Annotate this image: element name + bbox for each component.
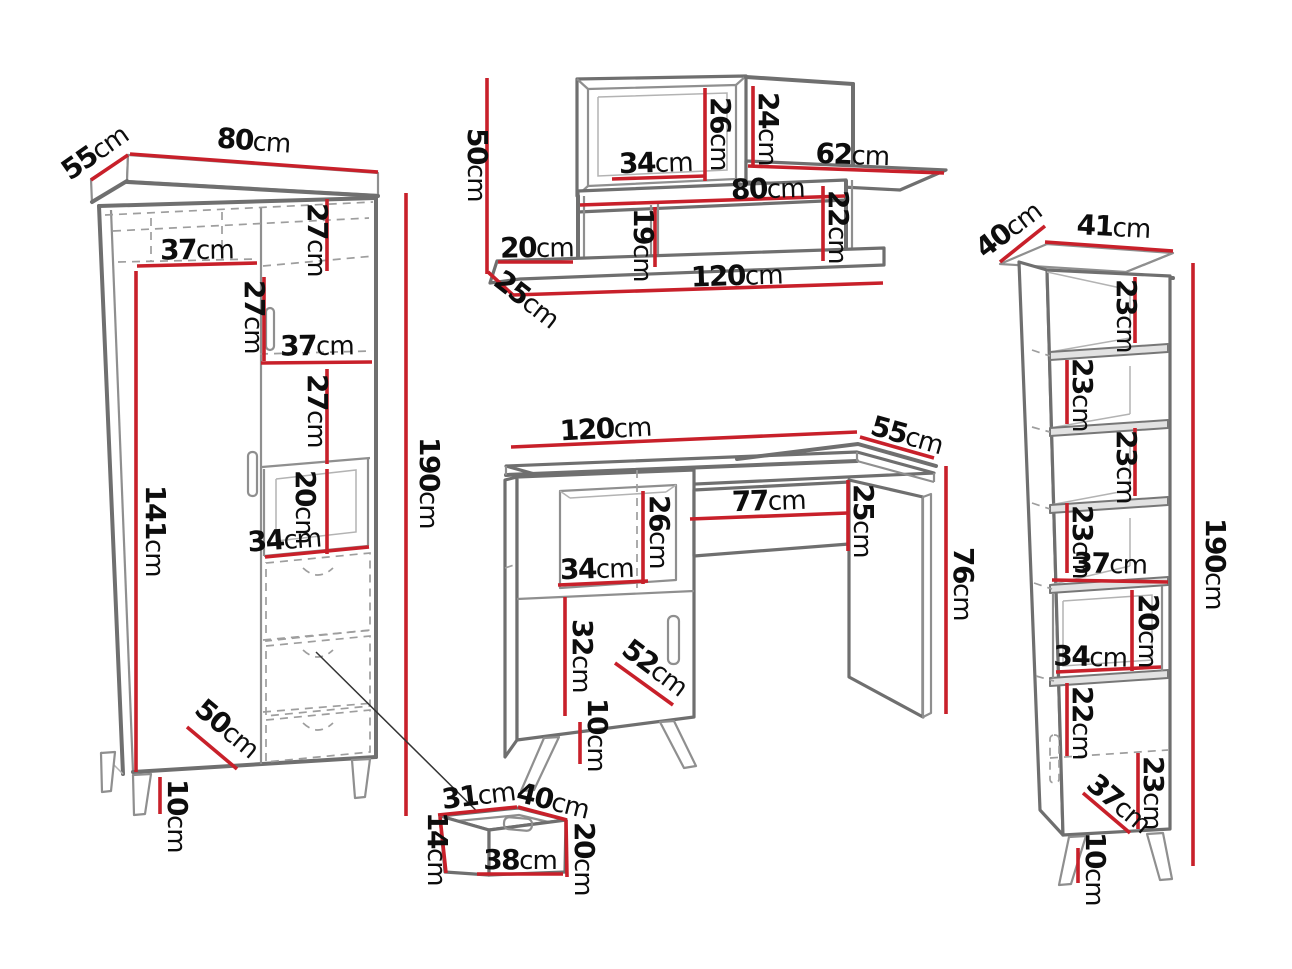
wardrobe-shelf-top-label: 37cm (160, 232, 234, 266)
bookcase-width-label: 41cm (1076, 208, 1151, 245)
dim-value: 26 (704, 97, 737, 133)
dim-unit: cm (566, 655, 596, 693)
dim-value: 80 (730, 172, 768, 206)
wardrobe-width-label: 80cm (216, 121, 292, 159)
desk-compartment-width-label: 34cm (559, 551, 634, 587)
wardrobe-section-c-label: 27cm (301, 374, 334, 448)
drawer-box-side-height-label: 14cm (421, 812, 454, 886)
dim-value: 77 (731, 484, 768, 518)
dim-value: 41 (1076, 208, 1114, 243)
dim-value: 27 (301, 203, 334, 239)
drawer-box-total-height-line (566, 820, 567, 877)
dim-unit: cm (744, 260, 783, 291)
dim-value: 23 (1137, 756, 1170, 792)
bookcase-cubby-width-label: 34cm (1053, 639, 1127, 673)
shelf-height-label: 50cm (461, 128, 494, 202)
dim-unit: cm (519, 846, 557, 876)
shelf-divider-label: 19cm (627, 208, 660, 282)
bookcase-shelf-width-line (1052, 580, 1168, 582)
dim-unit: cm (568, 858, 598, 896)
bookcase-gap2-label: 23cm (1066, 358, 1099, 432)
dim-unit: cm (196, 235, 234, 266)
dim-value: 25 (847, 484, 880, 520)
wardrobe-door-handle (248, 452, 257, 496)
dim-value: 37 (160, 233, 197, 267)
dim-unit: cm (643, 531, 673, 569)
wardrobe-leg-label: 10cm (161, 779, 194, 853)
dim-value: 37 (280, 329, 317, 363)
dim-value: 76 (947, 547, 980, 583)
dim-unit: cm (1132, 630, 1162, 668)
dim-value: 120 (559, 412, 616, 448)
shelf-cabinet-width-label: 34cm (618, 145, 693, 181)
dim-unit: cm (1199, 572, 1229, 610)
dim-value: 62 (815, 137, 852, 171)
dim-value: 22 (822, 190, 855, 226)
wardrobe-drawing: 55cm 80cm 190cm 37cm 27cm 27cm 37cm 27cm… (55, 118, 446, 853)
wardrobe-base-depth-label: 50cm (189, 692, 267, 765)
dim-value: 10 (581, 698, 614, 735)
desk-door-height-label: 32cm (566, 619, 599, 693)
dim-value: 34 (618, 146, 656, 180)
dim-unit: cm (822, 226, 852, 264)
dim-value: 23 (1066, 358, 1099, 394)
dim-value: 27 (238, 280, 271, 316)
drawer-box-total-height-label: 20cm (568, 822, 601, 896)
dim-value: 26 (643, 495, 676, 531)
dim-value: 34 (559, 552, 597, 586)
wardrobe-labels: 55cm 80cm 190cm 37cm 27cm 27cm 37cm 27cm… (55, 118, 446, 853)
dim-unit: cm (613, 413, 652, 445)
bookcase-gap-below-cubby-label: 22cm (1066, 686, 1099, 760)
bookcase-gap3-label: 23cm (1110, 430, 1143, 504)
wardrobe-leg (101, 752, 115, 792)
dim-value: 10 (1079, 832, 1112, 869)
dim-value: 19 (627, 208, 660, 244)
dim-unit: cm (1066, 394, 1096, 432)
dim-unit: cm (413, 491, 443, 529)
desk-leg (660, 721, 696, 768)
dim-unit: cm (627, 244, 657, 282)
dim-unit: cm (238, 316, 268, 354)
shelf-right-opening-label: 24cm (752, 92, 785, 166)
dim-value: 32 (566, 619, 599, 655)
dim-unit: cm (1110, 466, 1140, 504)
bookcase-gap1-label: 23cm (1110, 279, 1143, 353)
dim-unit: cm (752, 128, 782, 166)
wall-shelf-drawing: 50cm 26cm 34cm 24cm 62cm 80cm 22cm 19cm … (461, 76, 946, 335)
dim-unit: cm (316, 331, 354, 362)
dim-value: 120 (690, 259, 746, 294)
dim-value: 27 (301, 374, 334, 410)
dim-unit: cm (1089, 643, 1127, 674)
shelf-width-label: 120cm (690, 257, 783, 293)
drawer-box-front-width-label: 38cm (483, 843, 557, 876)
shelf-top-shelf-label: 62cm (815, 137, 890, 173)
desk-drawing: 120cm 55cm 76cm 77cm 25cm 26cm 34cm 32cm… (505, 409, 980, 791)
wardrobe-shelf-mid-label: 37cm (280, 328, 354, 362)
dim-value: 190 (1199, 518, 1232, 573)
dim-unit: cm (461, 164, 491, 202)
dim-value: 23 (1110, 279, 1143, 315)
wardrobe-leg (352, 759, 370, 798)
dim-value: 80 (216, 121, 255, 156)
dim-value: 38 (483, 843, 519, 876)
dim-unit: cm (767, 486, 806, 517)
dim-unit: cm (139, 539, 169, 577)
bookcase-leg-label: 10cm (1079, 832, 1112, 906)
dim-value: 23 (1066, 505, 1099, 541)
dim-value: 24 (752, 92, 785, 129)
dim-value: 31 (440, 779, 480, 816)
dim-value: 20 (568, 822, 601, 859)
dim-value: 20 (1132, 594, 1165, 631)
dim-unit: cm (476, 777, 517, 811)
shelf-left-shelf-label: 20cm (500, 230, 574, 264)
dim-unit: cm (1109, 550, 1147, 581)
desk-depth-label: 55cm (867, 409, 947, 461)
bookcase-leg (1147, 833, 1172, 880)
dim-unit: cm (654, 148, 693, 179)
shelf-right-gap-label: 22cm (822, 190, 855, 264)
dim-unit: cm (847, 520, 877, 558)
dim-unit: cm (301, 410, 331, 448)
dim-unit: cm (1112, 213, 1151, 245)
dim-unit: cm (581, 734, 611, 772)
shelf-middle-shelf-label: 80cm (730, 171, 805, 207)
dim-value: 20 (289, 470, 322, 507)
dim-value: 141 (139, 485, 172, 539)
dim-unit: cm (161, 815, 191, 853)
bookcase-cubby-height-label: 20cm (1132, 594, 1165, 668)
dim-value: 37 (1073, 546, 1110, 580)
shelf-cabinet-height-label: 26cm (704, 97, 737, 171)
dim-value: 23 (1110, 430, 1143, 466)
wardrobe-height-label: 190cm (413, 437, 446, 529)
dim-value: 20 (500, 231, 538, 265)
dim-unit: cm (851, 141, 890, 172)
furniture-diagram-page: 55cm 80cm 190cm 37cm 27cm 27cm 37cm 27cm… (0, 0, 1292, 969)
dim-value: 34 (1053, 639, 1091, 673)
bookcase-drawing: 40cm 41cm 190cm 23cm 23cm 23cm 23cm 37cm… (969, 194, 1232, 906)
dim-unit: cm (252, 127, 292, 160)
dim-unit: cm (536, 233, 574, 264)
wardrobe-hanging-label: 141cm (139, 485, 172, 577)
dim-unit: cm (595, 554, 634, 585)
dim-value: 22 (1066, 686, 1099, 722)
desk-compartment-height-label: 26cm (643, 495, 676, 569)
desk-apron-label: 25cm (847, 484, 880, 558)
desk-height-label: 76cm (947, 547, 980, 621)
dim-unit: cm (766, 174, 805, 205)
dim-unit: cm (1110, 315, 1140, 353)
dim-value: 10 (161, 779, 194, 816)
wardrobe-shelf-mid-line (261, 362, 372, 363)
dim-unit: cm (283, 523, 323, 556)
bookcase-shelf-width-label: 37cm (1073, 546, 1147, 580)
dim-unit: cm (301, 239, 331, 277)
wardrobe-leg (133, 774, 151, 815)
desk-knee-width-label: 77cm (731, 483, 806, 519)
desk-leg-label: 10cm (581, 698, 614, 772)
wardrobe-cubby-width-label: 34cm (246, 520, 322, 558)
furniture-diagram: 55cm 80cm 190cm 37cm 27cm 27cm 37cm 27cm… (0, 0, 1292, 969)
desk-width-label: 120cm (559, 410, 652, 448)
wardrobe-section-a-label: 27cm (301, 203, 334, 277)
dim-value: 190 (413, 437, 446, 492)
dim-unit: cm (1079, 868, 1109, 906)
dim-value: 50 (461, 128, 494, 165)
dim-value: 14 (421, 812, 454, 849)
dim-value: 34 (246, 523, 285, 558)
bookcase-height-label: 190cm (1199, 518, 1232, 610)
dim-unit: cm (947, 583, 977, 621)
dim-unit: cm (902, 422, 946, 461)
wardrobe-section-b-label: 27cm (238, 280, 271, 354)
dim-unit: cm (1066, 722, 1096, 760)
dim-unit: cm (421, 848, 451, 886)
dim-unit: cm (704, 133, 734, 171)
